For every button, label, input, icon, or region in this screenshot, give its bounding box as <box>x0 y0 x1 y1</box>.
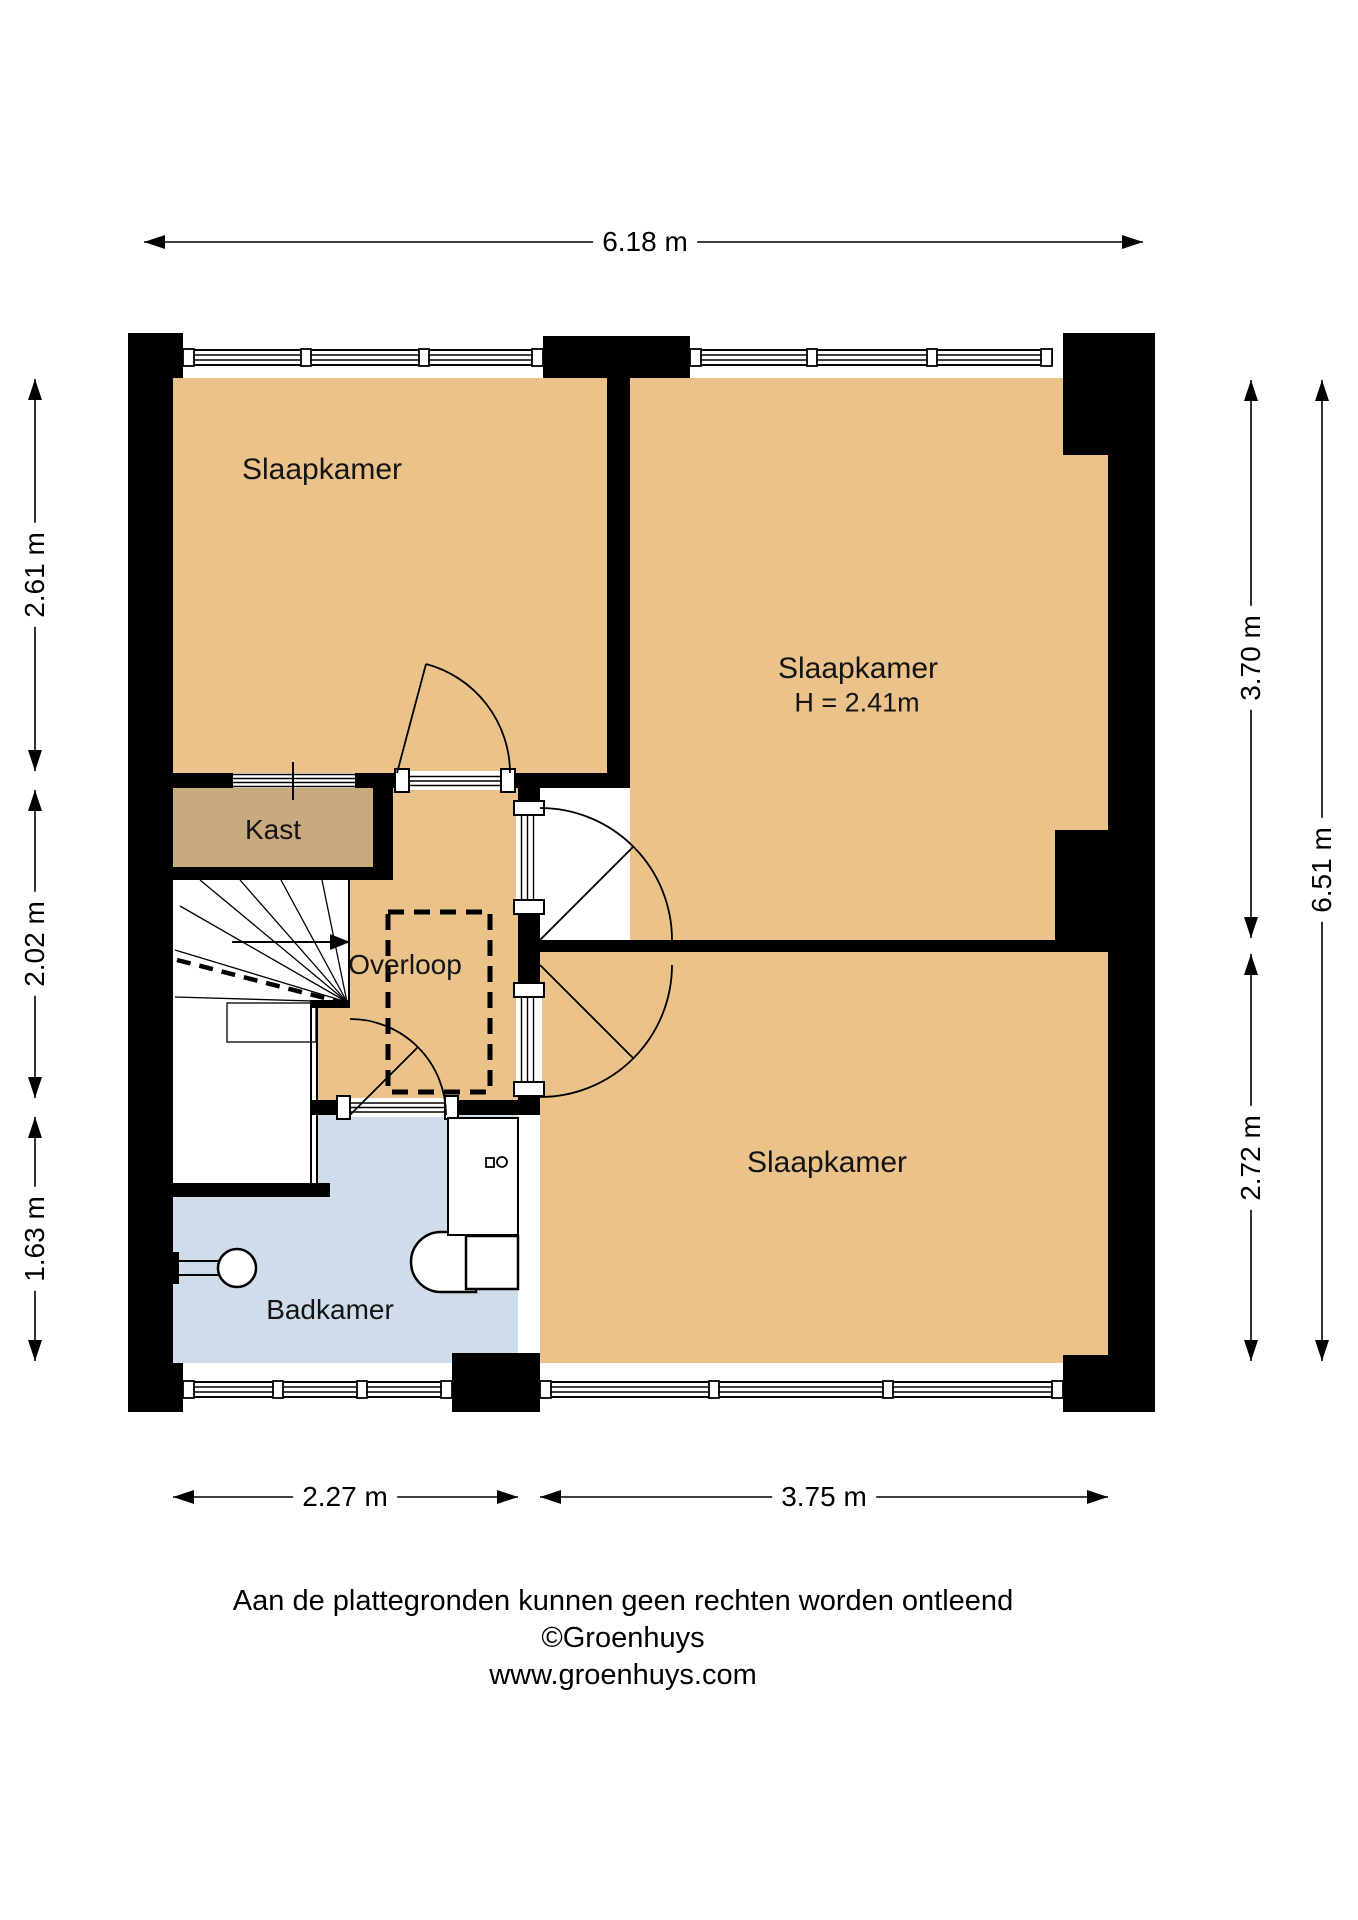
floorplan-page: Slaapkamer Slaapkamer H = 2.41m Slaapkam… <box>0 0 1358 1920</box>
label-slaapkamer-bottom: Slaapkamer <box>747 1148 907 1178</box>
footer-copyright: ©Groenhuys <box>233 1620 1013 1657</box>
label-overloop: Overloop <box>348 951 462 979</box>
window-top-left <box>183 349 543 366</box>
cupboard-unit <box>448 1118 518 1235</box>
stairwell-lower <box>173 1003 318 1197</box>
wall-notch <box>1055 830 1108 952</box>
toilet <box>411 1232 518 1292</box>
door-frame-top-left-room <box>395 769 515 792</box>
dim-bottom-2: 3.75 m <box>772 1480 876 1514</box>
dim-left-3: 1.63 m <box>18 1187 52 1291</box>
dim-bottom-1: 2.27 m <box>293 1480 397 1514</box>
footer-disclaimer: Aan de plattegronden kunnen geen rechten… <box>233 1583 1013 1620</box>
label-ceiling-height: H = 2.41m <box>794 690 919 717</box>
window-bottom-slaapkamer <box>540 1381 1063 1398</box>
label-slaapkamer-top-right: Slaapkamer <box>778 654 938 684</box>
label-badkamer: Badkamer <box>266 1296 394 1324</box>
label-slaapkamer-top-left: Slaapkamer <box>242 455 402 485</box>
footer-website: www.groenhuys.com <box>233 1657 1013 1694</box>
window-bottom-badkamer <box>183 1381 452 1398</box>
door-frame-bottom-room <box>514 983 544 1097</box>
dim-right-outer: 6.51 m <box>1305 818 1339 922</box>
footer: Aan de plattegronden kunnen geen rechten… <box>233 1583 1013 1694</box>
dim-top-width: 6.18 m <box>593 225 697 259</box>
dim-right-inner-2: 2.72 m <box>1234 1106 1268 1210</box>
dim-right-inner-1: 3.70 m <box>1234 606 1268 710</box>
label-kast: Kast <box>245 816 301 844</box>
dim-left-2: 2.02 m <box>18 892 52 996</box>
door-frame-top-right-room <box>514 801 544 915</box>
dim-left-1: 2.61 m <box>18 523 52 627</box>
room-slaapkamer-top-left <box>173 378 607 773</box>
window-top-right <box>690 349 1052 366</box>
door-frame-badkamer <box>337 1096 458 1119</box>
